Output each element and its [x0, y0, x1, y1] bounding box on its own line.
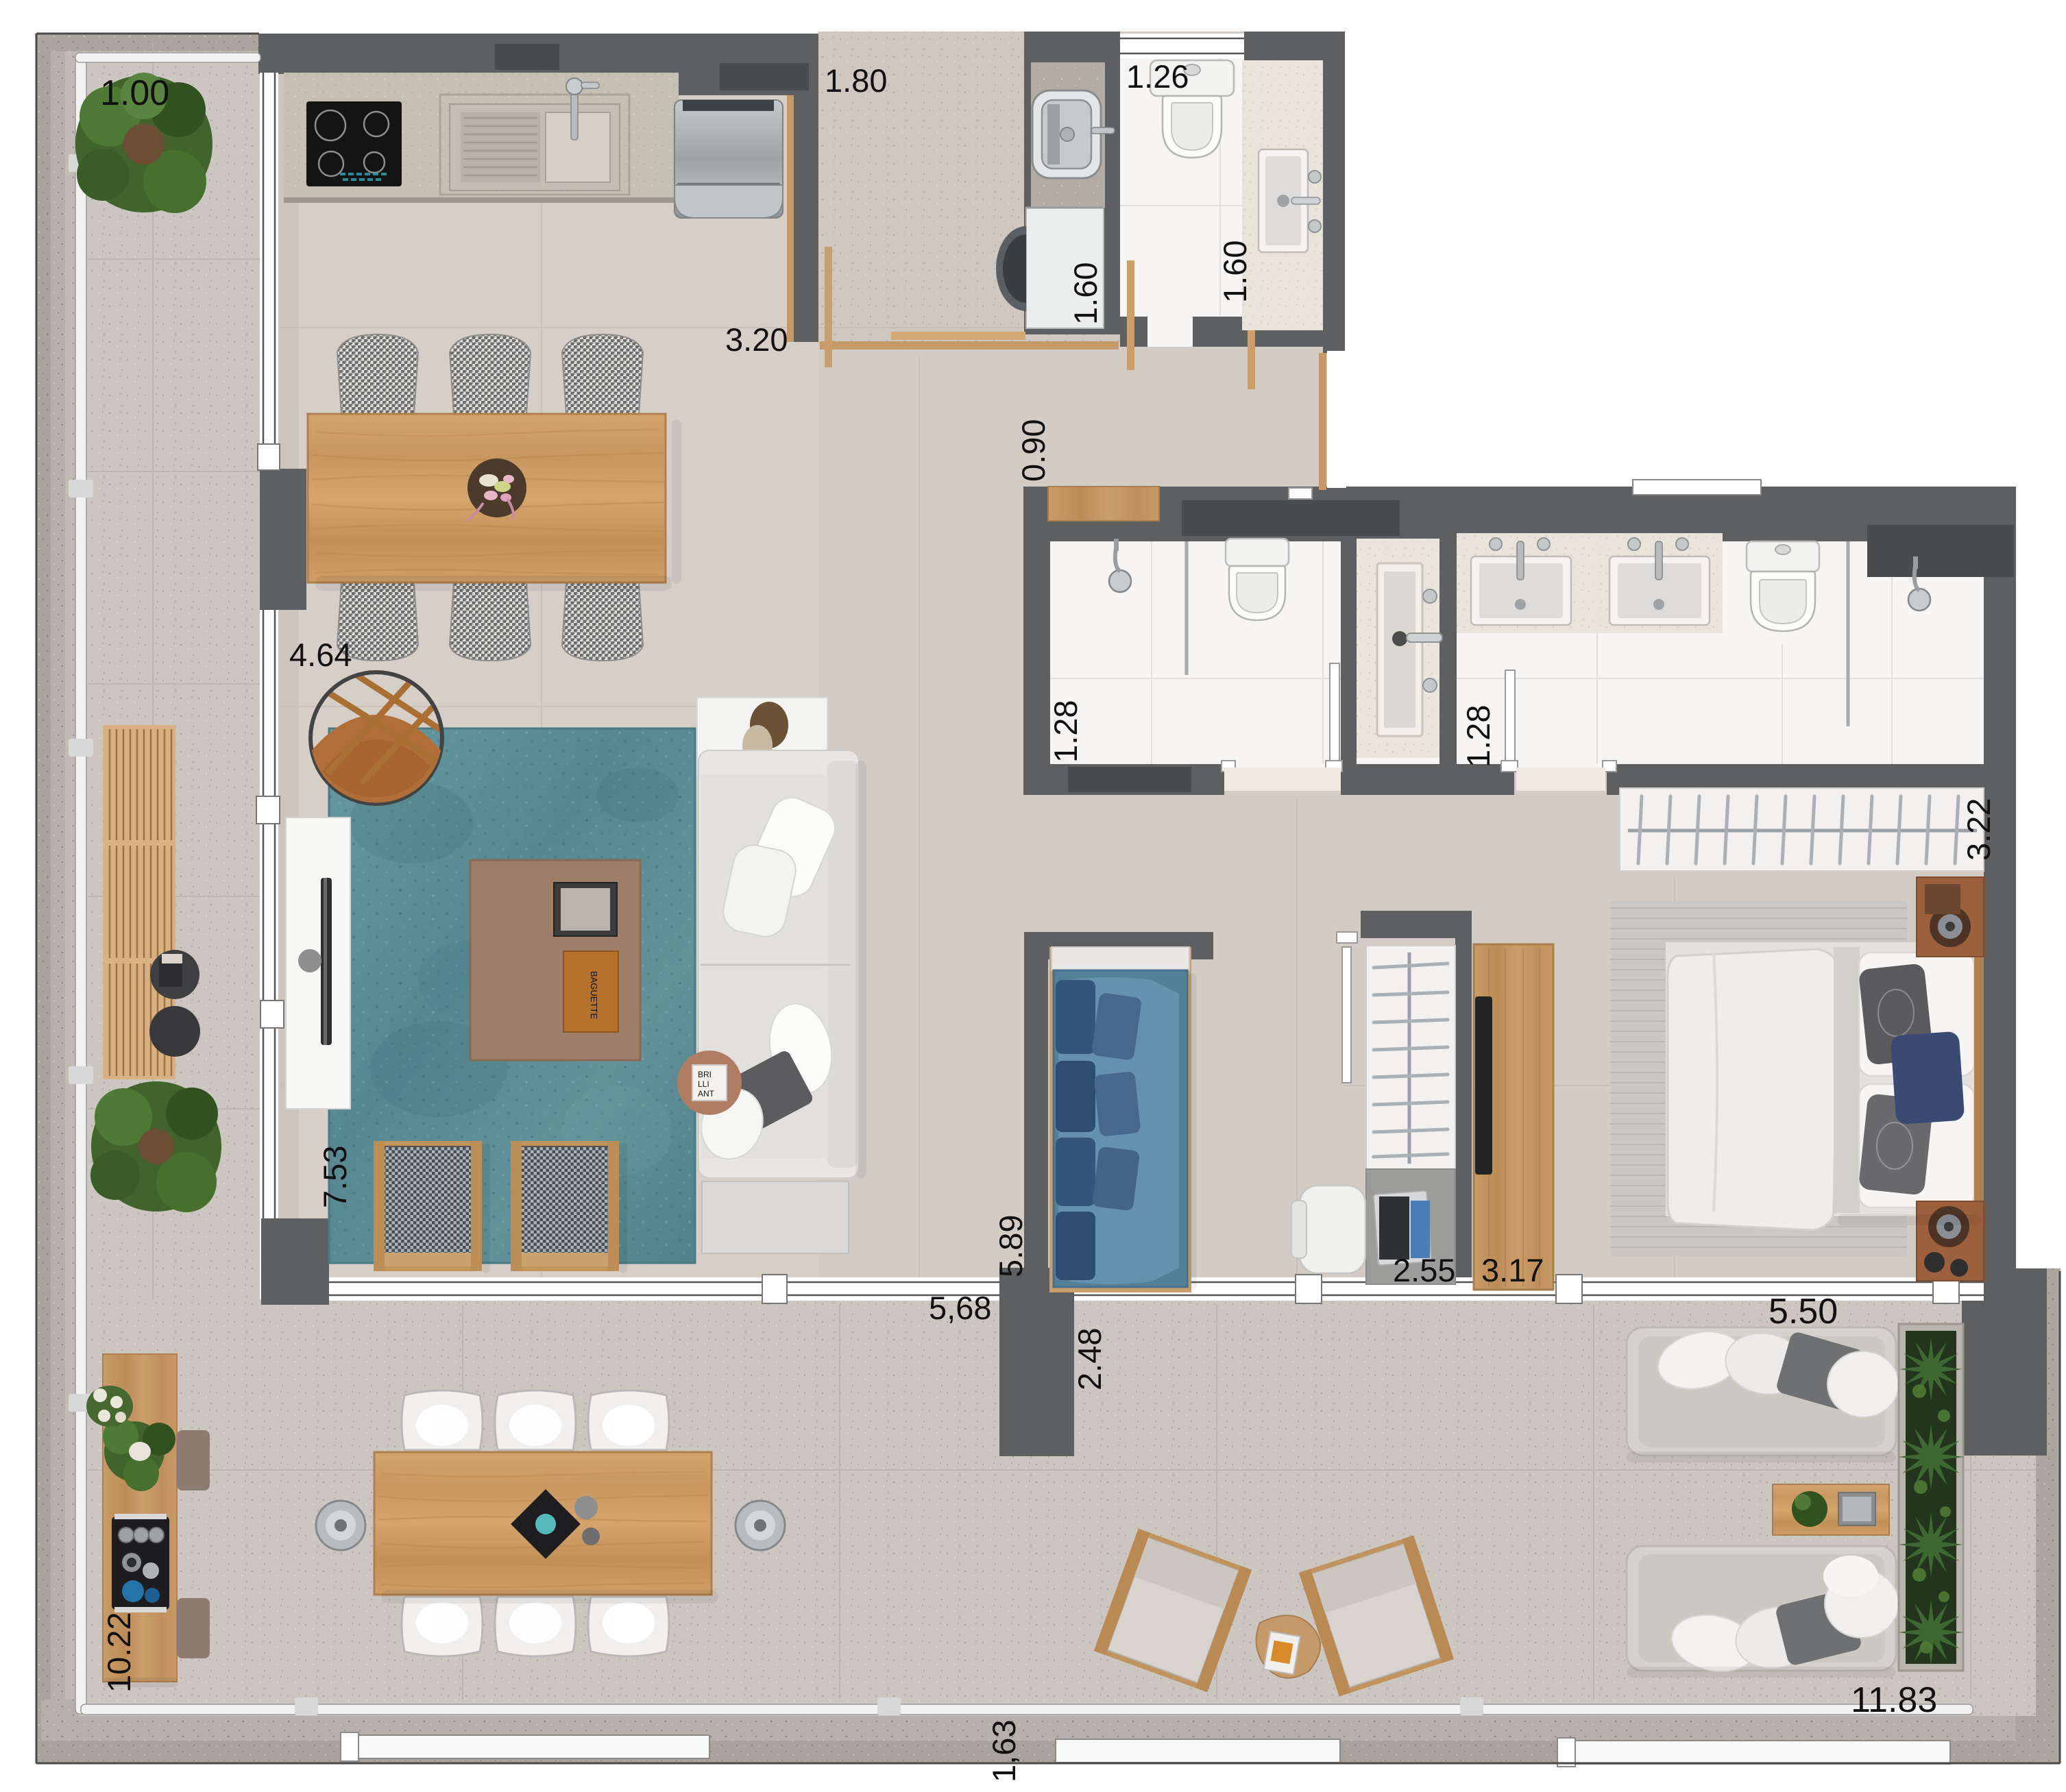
svg-text:1.80: 1.80: [825, 62, 887, 99]
svg-text:11.83: 11.83: [1851, 1680, 1937, 1720]
svg-text:1,63: 1,63: [986, 1720, 1022, 1782]
svg-text:5.50: 5.50: [1769, 1292, 1838, 1331]
svg-text:2.55: 2.55: [1393, 1252, 1455, 1288]
svg-text:1.60: 1.60: [1067, 262, 1104, 325]
svg-text:1.28: 1.28: [1047, 700, 1084, 763]
svg-text:5,68: 5,68: [929, 1290, 991, 1326]
svg-text:1.60: 1.60: [1217, 241, 1253, 303]
svg-text:1.26: 1.26: [1126, 58, 1189, 95]
svg-text:0.90: 0.90: [1015, 419, 1052, 482]
svg-text:1.28: 1.28: [1460, 705, 1496, 768]
svg-text:ANT: ANT: [698, 1089, 715, 1098]
svg-text:7.53: 7.53: [317, 1146, 353, 1208]
svg-text:1.00: 1.00: [100, 73, 169, 113]
svg-text:2.48: 2.48: [1071, 1328, 1108, 1390]
svg-text:4.64: 4.64: [289, 637, 352, 673]
svg-text:5.89: 5.89: [993, 1215, 1029, 1277]
svg-text:3.20: 3.20: [725, 321, 788, 358]
svg-text:LLI: LLI: [698, 1079, 709, 1089]
svg-text:3.22: 3.22: [1960, 798, 1997, 861]
svg-text:BRI: BRI: [698, 1070, 712, 1079]
svg-text:3.17: 3.17: [1481, 1252, 1544, 1288]
svg-text:BAGUETTE: BAGUETTE: [589, 971, 599, 1019]
svg-text:10.22: 10.22: [101, 1612, 137, 1693]
